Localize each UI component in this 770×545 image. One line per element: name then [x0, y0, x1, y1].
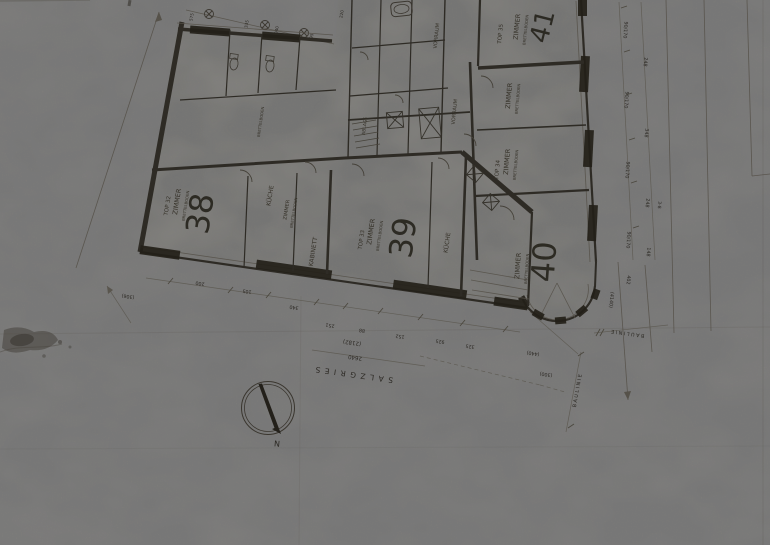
dim-bottom-7: 325	[465, 342, 475, 349]
dim-window-3: 90/170	[624, 231, 631, 248]
unit40-number: 40	[524, 240, 565, 283]
dim-spacing-2: 248	[644, 198, 651, 208]
dim-spacing-1: 348	[643, 128, 650, 138]
unit38-number: 38	[178, 190, 222, 236]
dim-extra-402: 402	[625, 275, 632, 285]
dim-bottom-0: 200	[195, 279, 205, 286]
dim-spacing-3: 148	[645, 247, 652, 257]
dim-spacing-0: 248	[642, 57, 649, 67]
north-label: N	[274, 438, 281, 447]
dim-bottom-6: 925	[435, 337, 445, 344]
scanned-floor-plan-sheet: N TOP 32 ZIMMER BRETTELBODEN 38 KÜCHE ZI…	[0, 0, 770, 545]
dim-window-0: 90/170	[621, 21, 628, 38]
dim-window-1: 90/170	[622, 91, 629, 108]
dim-bottom-3: 251	[325, 321, 335, 328]
dim-bottom-4: 88	[359, 327, 366, 334]
dim-bottom-1: 105	[242, 287, 252, 294]
unit39-number: 39	[381, 215, 424, 261]
dim-right-marker: 3-8	[656, 201, 663, 209]
floor-plan-drawing: N TOP 32 ZIMMER BRETTELBODEN 38 KÜCHE ZI…	[0, 0, 770, 545]
dim-window-2: 90/170	[623, 161, 630, 178]
dim-bottom-2: 340	[289, 303, 299, 310]
dim-bottom-5: 152	[395, 332, 405, 339]
